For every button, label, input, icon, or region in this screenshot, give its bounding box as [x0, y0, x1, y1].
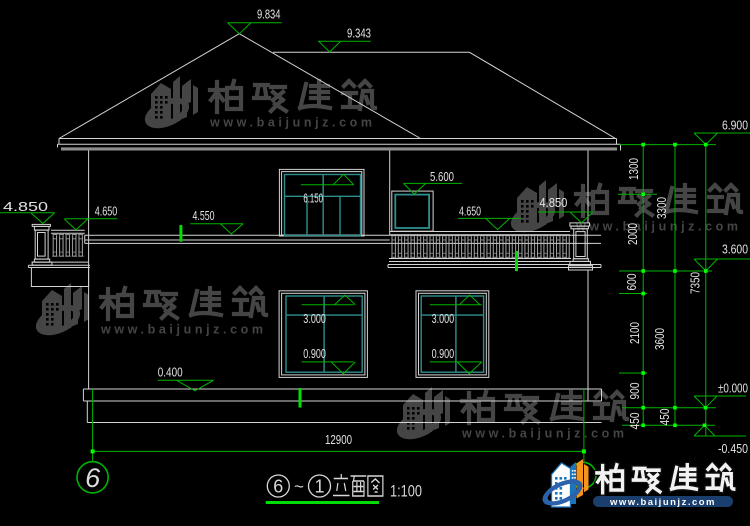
svg-text:4.650: 4.650 [95, 203, 118, 218]
svg-text:0.900: 0.900 [432, 346, 455, 361]
svg-text:±0.000: ±0.000 [718, 380, 748, 395]
svg-text:600: 600 [624, 274, 639, 291]
svg-text:450: 450 [657, 409, 672, 426]
svg-text:12900: 12900 [325, 432, 352, 447]
svg-text:3300: 3300 [654, 197, 669, 219]
svg-text:-0.450: -0.450 [718, 441, 748, 456]
svg-text:www.baijunjz.com: www.baijunjz.com [609, 497, 716, 508]
svg-text:0.400: 0.400 [158, 365, 183, 380]
svg-text:2000: 2000 [625, 223, 640, 245]
svg-text:4.650: 4.650 [459, 204, 481, 219]
svg-text:6: 6 [85, 463, 101, 493]
svg-text:3.000: 3.000 [432, 311, 455, 326]
svg-text:3600: 3600 [652, 328, 667, 350]
svg-text:7350: 7350 [688, 272, 703, 294]
svg-text:6.150: 6.150 [303, 191, 323, 206]
svg-text:1:100: 1:100 [390, 483, 422, 501]
svg-text:3.600: 3.600 [722, 241, 748, 256]
svg-text:4.850: 4.850 [539, 195, 567, 210]
svg-text:5.600: 5.600 [430, 169, 454, 184]
svg-text:9.834: 9.834 [257, 7, 281, 22]
svg-text:900: 900 [627, 383, 642, 400]
svg-text:1300: 1300 [626, 158, 641, 180]
svg-text:4.850: 4.850 [3, 199, 48, 214]
svg-text:~: ~ [294, 477, 304, 496]
svg-text:2100: 2100 [627, 322, 642, 344]
svg-text:6.900: 6.900 [722, 117, 748, 132]
svg-text:3.000: 3.000 [303, 311, 326, 326]
svg-text:4.550: 4.550 [193, 208, 215, 223]
svg-text:450: 450 [627, 413, 642, 430]
svg-text:0.900: 0.900 [303, 346, 326, 361]
svg-text:9.343: 9.343 [347, 26, 371, 41]
svg-text:1: 1 [314, 477, 324, 497]
svg-text:6: 6 [273, 477, 283, 497]
